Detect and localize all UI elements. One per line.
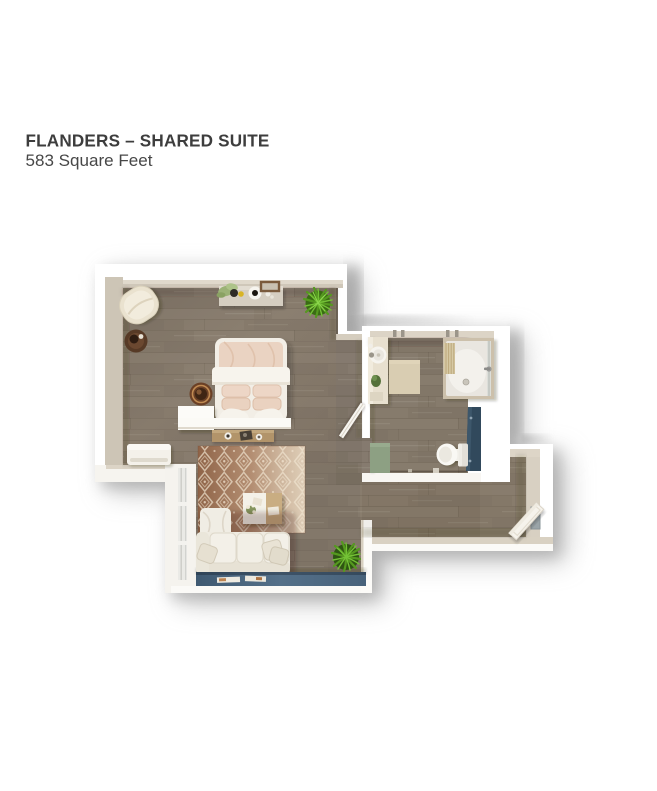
svg-text:FLANDERS – SHARED SUITE: FLANDERS – SHARED SUITE bbox=[26, 131, 270, 151]
svg-text:583 Square Feet: 583 Square Feet bbox=[26, 151, 153, 170]
